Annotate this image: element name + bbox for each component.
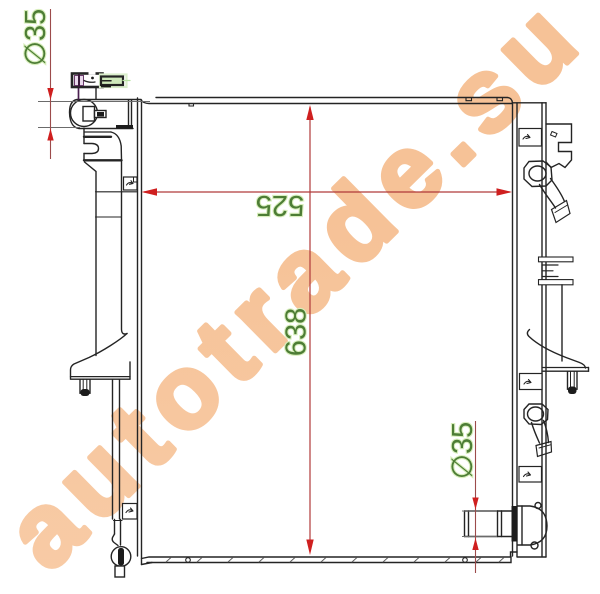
svg-text:∅35: ∅35: [20, 9, 52, 67]
svg-text:∅35: ∅35: [447, 422, 479, 480]
svg-text:525: 525: [256, 189, 304, 221]
svg-text:638: 638: [281, 308, 313, 356]
svg-text:autotrade.su: autotrade.su: [0, 0, 600, 590]
